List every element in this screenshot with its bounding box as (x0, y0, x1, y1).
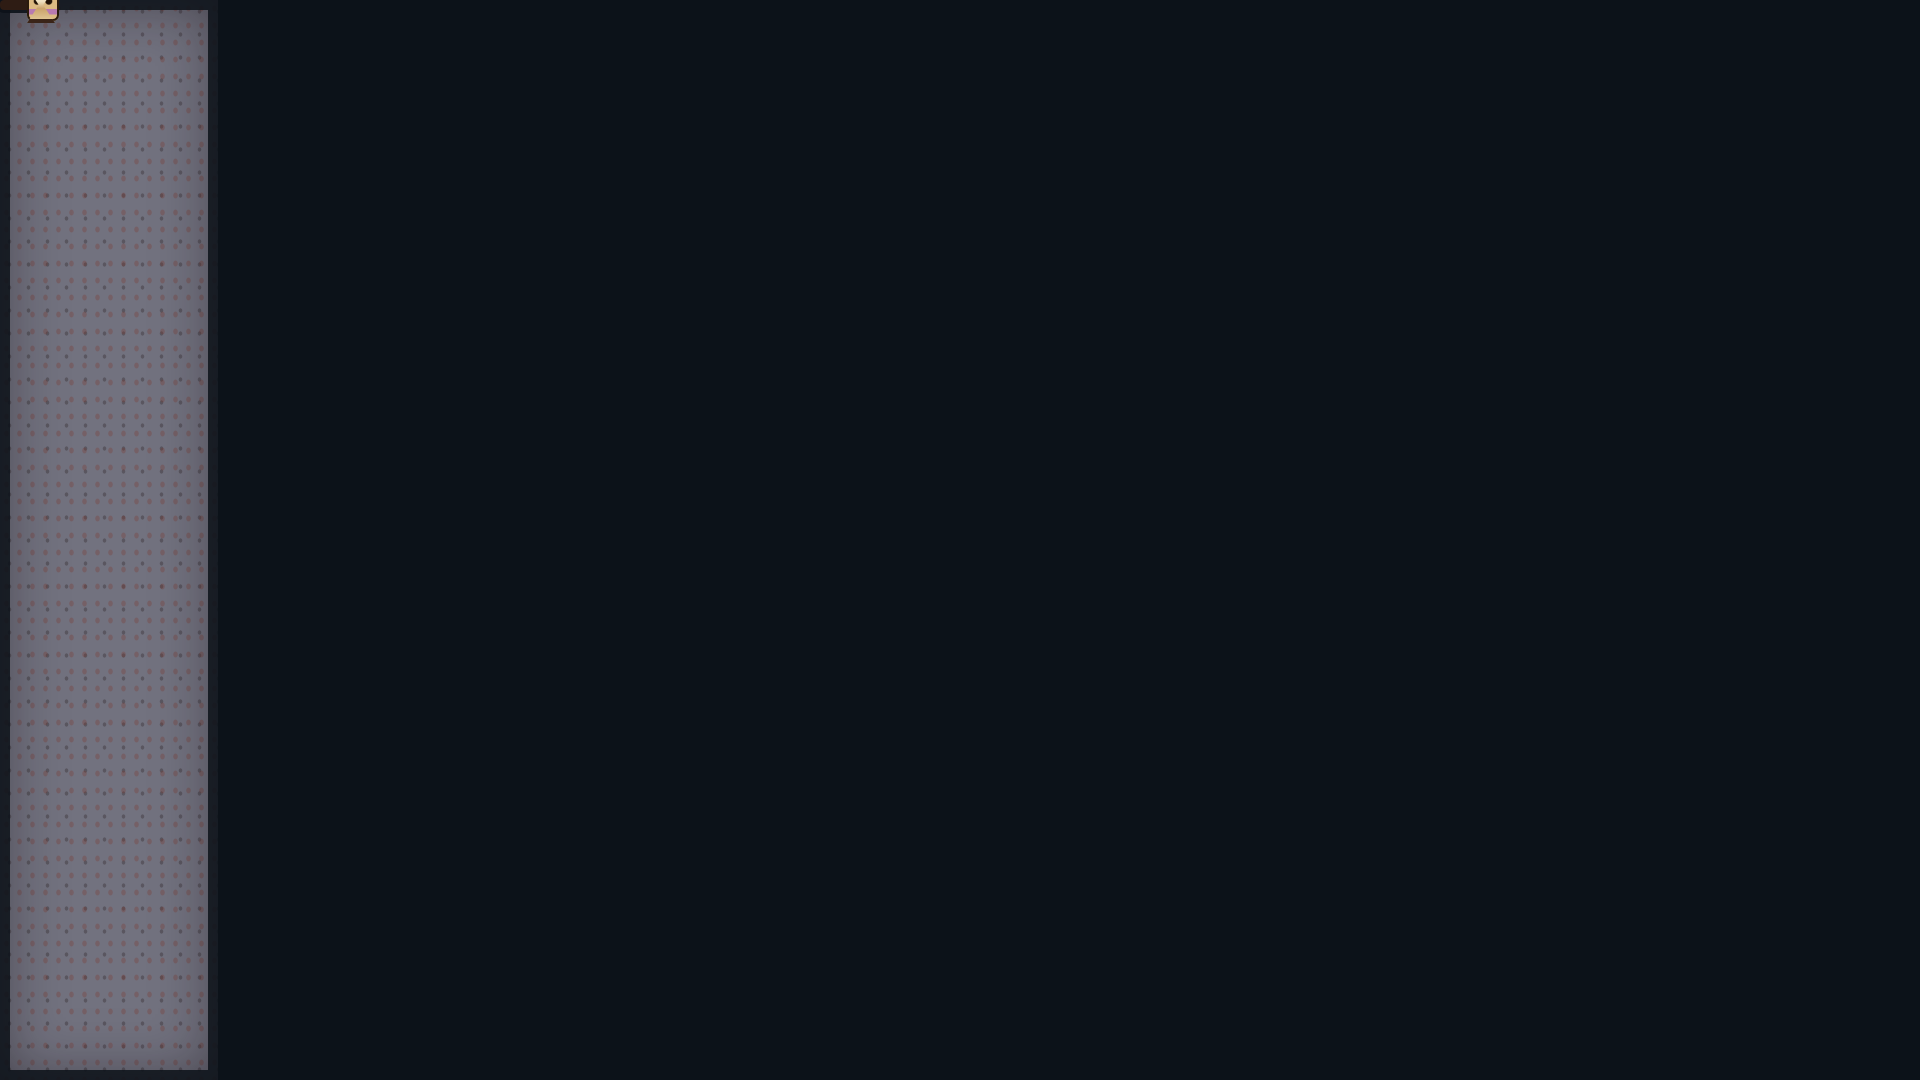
game-viewport[interactable] (0, 0, 1920, 1080)
hud-bar (0, 0, 54, 10)
hieroglyph-panel-left (0, 0, 218, 1080)
